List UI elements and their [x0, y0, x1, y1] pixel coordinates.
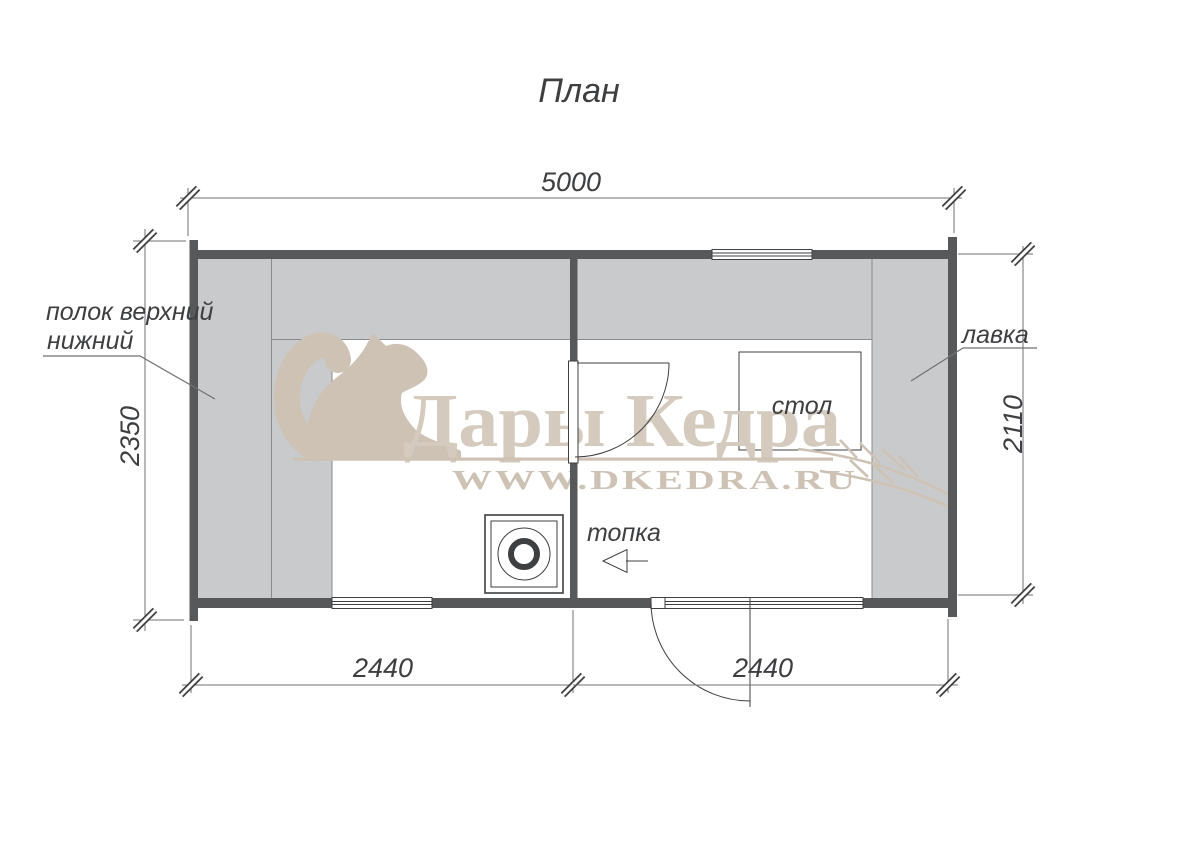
stove-icon [485, 515, 563, 593]
steam-room-top-bench [272, 258, 572, 340]
label-shelf-upper: полок верхний [46, 298, 214, 326]
dim-total-width: 5000 [541, 167, 601, 197]
floor-plan-drawing: Дары Кедра WWW.DKEDRA.RU [0, 0, 1200, 848]
steam-room-window-icon [332, 598, 432, 609]
label-table: стол [772, 392, 833, 420]
dimension-2440-left: 2440 [181, 610, 583, 695]
top-window-icon [712, 250, 812, 260]
right-wall [948, 237, 957, 617]
page-title: План [538, 72, 620, 110]
dim-rest-room-width: 2440 [732, 653, 793, 683]
dim-left-height: 2350 [115, 406, 145, 467]
rest-room-side-bench [872, 258, 949, 599]
dimension-2110: 2110 [958, 244, 1033, 605]
dim-right-height: 2110 [998, 395, 1028, 454]
label-bench: лавка [960, 321, 1029, 349]
floor-plan-page: Дары Кедра WWW.DKEDRA.RU [0, 0, 1200, 848]
watermark-underline [293, 458, 833, 461]
dimension-2350: 2350 [115, 229, 186, 631]
label-firebox: топка [587, 519, 661, 547]
rest-room-top-bench [577, 258, 872, 340]
watermark-site: WWW.DKEDRA.RU [452, 465, 858, 495]
dimension-2440-right: 2440 [573, 619, 958, 695]
dimension-5000: 5000 [178, 167, 964, 236]
shelf-leader-line [43, 356, 215, 399]
firebox-arrow-icon [603, 550, 648, 573]
entry-opening [651, 598, 863, 609]
dim-steam-room-width: 2440 [352, 653, 413, 683]
label-shelf-lower: нижний [47, 327, 134, 355]
